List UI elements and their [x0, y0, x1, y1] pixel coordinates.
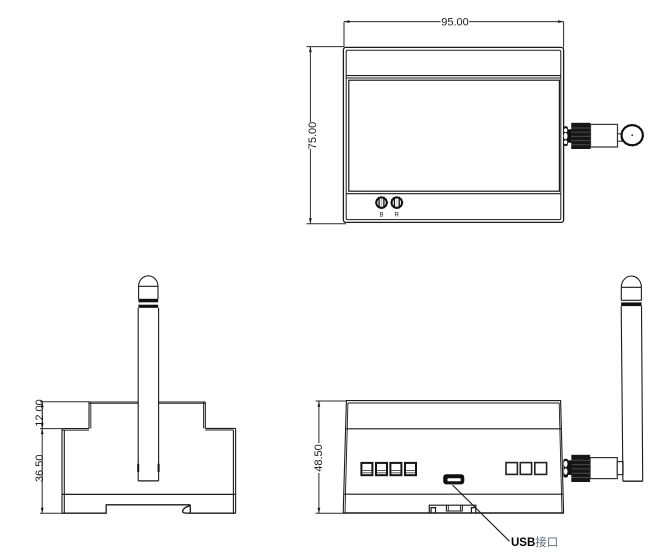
svg-text:48.50: 48.50	[313, 444, 325, 472]
svg-text:12.00: 12.00	[34, 399, 46, 427]
svg-text:36.50: 36.50	[34, 455, 46, 483]
svg-text:R: R	[395, 213, 400, 219]
svg-text:95.00: 95.00	[441, 16, 469, 28]
svg-text:75.00: 75.00	[307, 122, 319, 150]
svg-text:B: B	[379, 213, 383, 219]
svg-text:USB接口: USB接口	[511, 536, 558, 549]
